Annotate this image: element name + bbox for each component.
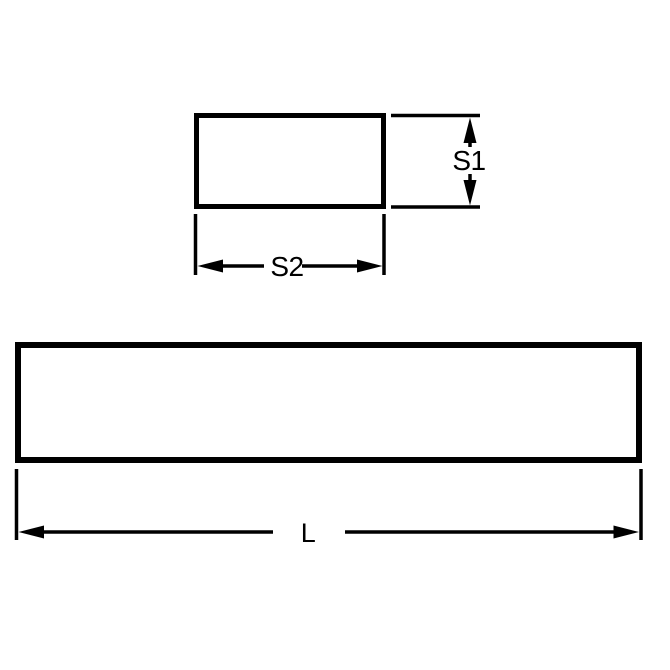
s1-arrow-down-icon <box>464 180 477 206</box>
cross-section-view: S1 S2 <box>196 116 486 283</box>
side-view-rectangle <box>18 345 639 460</box>
dimension-l: L <box>17 469 642 548</box>
l-arrow-right-icon <box>614 526 640 539</box>
s2-arrow-right-icon <box>357 260 383 273</box>
side-view: L <box>17 345 642 548</box>
drawing-root: S1 S2 L <box>17 116 642 549</box>
s2-label: S2 <box>270 251 303 282</box>
drawing-canvas: S1 S2 L <box>0 0 670 670</box>
dimension-s2: S2 <box>196 214 385 282</box>
technical-drawing: S1 S2 L <box>0 0 670 670</box>
cross-section-rectangle <box>197 116 384 207</box>
dimension-s1: S1 <box>391 116 486 208</box>
s1-label: S1 <box>452 145 485 176</box>
l-label: L <box>301 518 316 548</box>
